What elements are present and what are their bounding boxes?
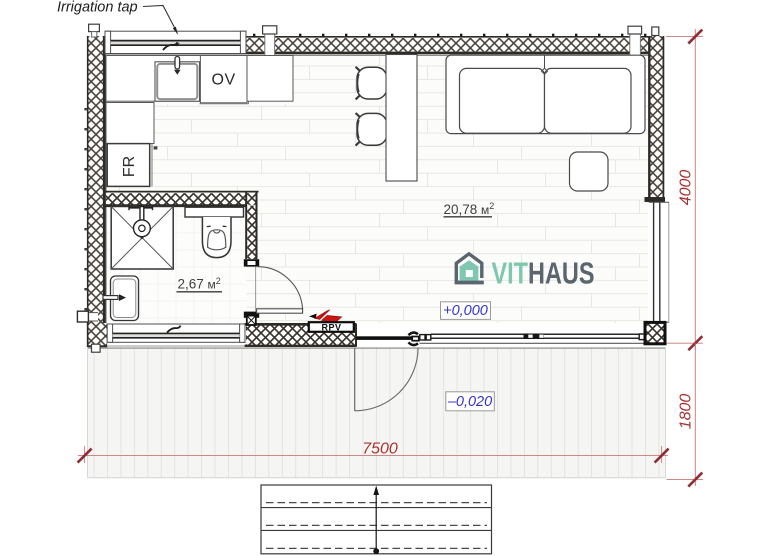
svg-text:2,67 м2: 2,67 м2 <box>178 276 221 292</box>
svg-text:4000: 4000 <box>678 170 695 206</box>
svg-text:OV: OV <box>212 72 236 89</box>
svg-text:+0,000: +0,000 <box>443 303 488 319</box>
svg-text:20,78 м2: 20,78 м2 <box>444 201 495 217</box>
svg-text:1800: 1800 <box>678 394 695 430</box>
svg-text:7500: 7500 <box>362 441 398 458</box>
svg-text:Irrigation tap: Irrigation tap <box>57 0 138 16</box>
svg-text:–0,020: –0,020 <box>447 394 492 410</box>
svg-text:VITHAUS: VITHAUS <box>492 255 595 290</box>
svg-text:RPV: RPV <box>321 322 341 332</box>
svg-text:FR: FR <box>121 156 138 177</box>
